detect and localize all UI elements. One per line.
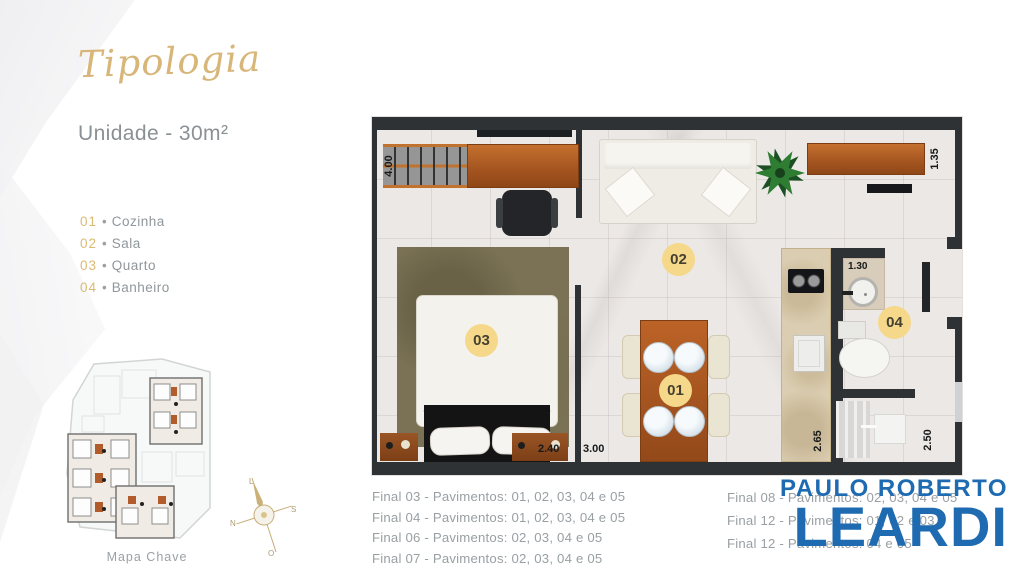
legend-bullet: • (102, 236, 107, 251)
toilet (839, 338, 890, 378)
room-label-quarto: 03 (465, 324, 498, 357)
watermark-line2: LEARDI (780, 499, 1008, 555)
finals-list-left: Final 03 - Pavimentos: 01, 02, 03, 04 e … (372, 487, 625, 569)
room-label-banheiro: 04 (878, 306, 911, 339)
bath-wall-shower (837, 389, 915, 398)
window-sill (477, 130, 572, 137)
key-map-graphic (58, 356, 236, 548)
sofa-pillow-right (701, 167, 752, 218)
sofa (599, 139, 757, 224)
room-legend: 01•Cozinha 02•Sala 03•Quarto 04•Banheiro (80, 211, 170, 299)
dim-vanity: 1.30 (848, 261, 867, 272)
finals-line: Final 06 - Pavimentos: 02, 03, 04 e 05 (372, 528, 625, 549)
dim-rack: 4.00 (383, 149, 395, 183)
key-map-caption: Mapa Chave (58, 550, 236, 564)
compass-letter-l: L (249, 477, 254, 486)
storage-rack (383, 144, 467, 188)
tv-console (867, 184, 912, 193)
plate (674, 406, 705, 437)
toilet-tank (838, 321, 866, 339)
dining-chair (708, 393, 730, 437)
plate (643, 406, 674, 437)
nightstand-left (380, 433, 418, 461)
legend-bullet: • (102, 214, 107, 229)
finals-line: Final 07 - Pavimentos: 02, 03, 04 e 05 (372, 549, 625, 570)
legend-num: 01 (80, 214, 97, 229)
desk (467, 144, 579, 188)
legend-bullet: • (102, 258, 107, 273)
finals-line: Final 03 - Pavimentos: 01, 02, 03, 04 e … (372, 487, 625, 508)
shower-tray (836, 401, 870, 458)
dim-bed: 2.40 (538, 443, 559, 455)
bed-pillow-left (430, 426, 491, 456)
key-map-cluster-bottom (116, 486, 174, 538)
wall-top (372, 117, 962, 130)
legend-num: 04 (80, 280, 97, 295)
legend-label: Cozinha (112, 214, 165, 229)
door-jamb-bottom (947, 317, 962, 329)
page-title: Tipologia (77, 37, 262, 86)
room-label-sala: 02 (662, 243, 695, 276)
compass-rose-icon: L S O N (228, 472, 300, 560)
compass-letter-n: N (230, 519, 236, 528)
legend-bullet: • (102, 280, 107, 295)
legend-label: Quarto (112, 258, 156, 273)
plate (674, 342, 705, 373)
compass-letter-o: O (268, 549, 274, 558)
legend-label: Banheiro (112, 280, 170, 295)
dining-chair (708, 335, 730, 379)
leardi-watermark: PAULO ROBERTO LEARDI (780, 477, 1008, 555)
legend-item-quarto: 03•Quarto (80, 255, 170, 277)
wall-bottom (372, 462, 962, 475)
office-chair (502, 190, 552, 236)
compass-letter-s: S (291, 505, 296, 514)
finals-line: Final 04 - Pavimentos: 01, 02, 03, 04 e … (372, 508, 625, 529)
dim-shelf: 1.35 (929, 142, 941, 176)
legend-label: Sala (112, 236, 141, 251)
right-wall-window (955, 382, 962, 422)
shower-seat (874, 414, 906, 444)
legend-num: 03 (80, 258, 97, 273)
sofa-pillow-left (605, 167, 656, 218)
floor-plan: 4.00 02 1.35 03 2.40 3.00 (372, 117, 962, 475)
kitchen-sink (793, 335, 825, 372)
entry-door-leaf (922, 262, 930, 312)
legend-num: 02 (80, 236, 97, 251)
cooktop (788, 269, 824, 293)
wall-left (372, 117, 377, 475)
key-map-cluster-topright (150, 378, 202, 444)
plant-icon (755, 145, 805, 201)
dim-counter: 2.65 (812, 424, 824, 458)
wall-right-upper (955, 117, 962, 248)
bath-wall-top (843, 248, 885, 258)
unit-subtitle: Unidade - 30m² (78, 122, 228, 146)
room-label-cozinha: 01 (659, 374, 692, 407)
legend-item-banheiro: 04•Banheiro (80, 277, 170, 299)
washbasin (848, 277, 878, 307)
legend-item-cozinha: 01•Cozinha (80, 211, 170, 233)
legend-item-sala: 02•Sala (80, 233, 170, 255)
partition-bedroom (575, 285, 581, 462)
dim-bathroom: 2.50 (922, 423, 934, 457)
dim-living: 3.00 (583, 443, 604, 455)
door-jamb-top (947, 237, 962, 249)
wall-shelf (807, 143, 925, 175)
plate (643, 342, 674, 373)
page: Tipologia Unidade - 30m² 01•Cozinha 02•S… (0, 0, 1024, 577)
